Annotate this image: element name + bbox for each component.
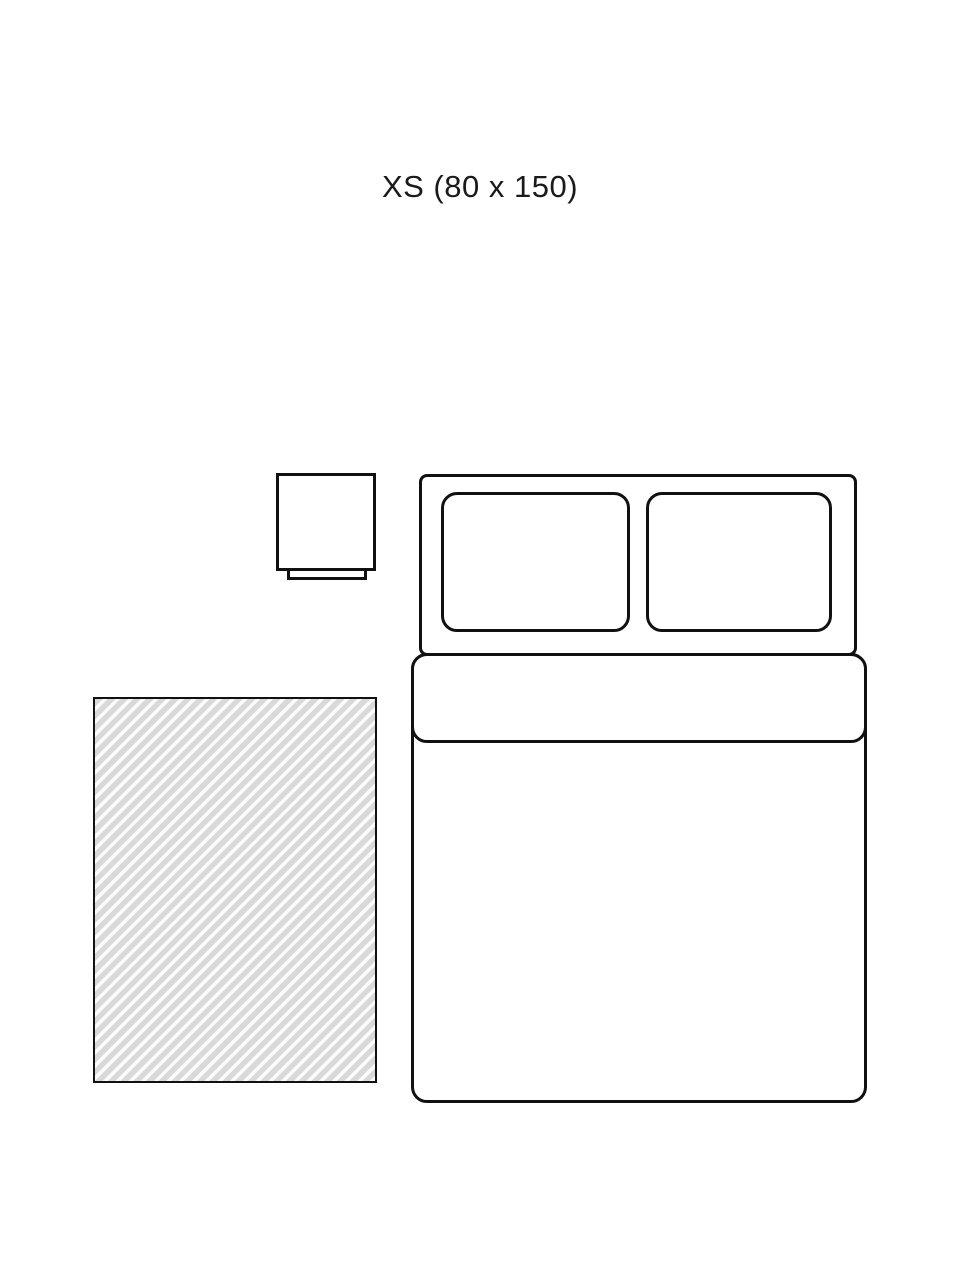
- rug-size-diagram: XS (80 x 150): [0, 0, 960, 1280]
- size-label: XS (80 x 150): [0, 168, 960, 206]
- pillow-left-icon: [441, 492, 630, 632]
- duvet-fold-icon: [411, 653, 867, 743]
- rug-swatch: [93, 697, 377, 1083]
- nightstand-base-icon: [287, 571, 367, 580]
- nightstand-top-icon: [276, 473, 376, 571]
- pillow-right-icon: [646, 492, 832, 632]
